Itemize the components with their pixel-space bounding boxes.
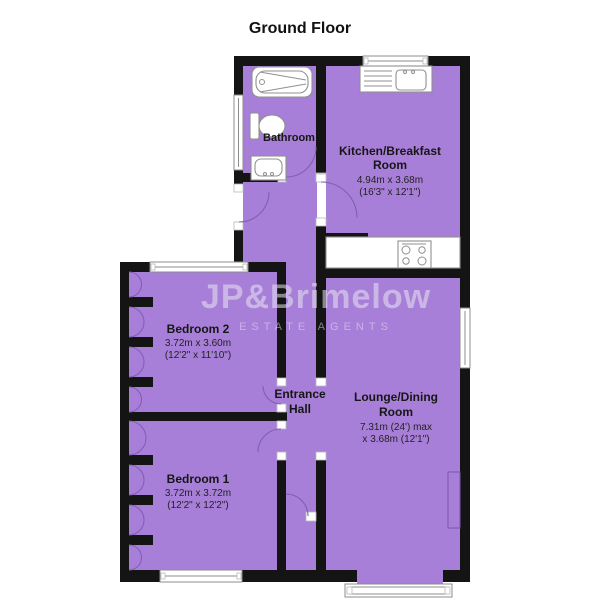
page-title: Ground Floor <box>249 20 351 37</box>
entrance-hall-label: Entrance <box>274 387 326 401</box>
floor-plan-page: JP&Brimelow ESTATE AGENTS Ground Floor B… <box>0 0 600 600</box>
bedroom1-dims-imperial: (12'2" x 12'2") <box>167 500 229 511</box>
bedroom1-dims-metric: 3.72m x 3.72m <box>165 488 231 499</box>
bathroom-label: Bathroom <box>263 132 315 144</box>
hob-icon <box>398 241 431 268</box>
kitchen-label: Kitchen/Breakfast <box>339 144 441 158</box>
svg-text:Room: Room <box>379 405 413 419</box>
bedroom2-label: Bedroom 2 <box>167 322 230 336</box>
kitchen-dims-metric: 4.94m x 3.68m <box>357 175 423 186</box>
lounge-bay-window <box>345 584 452 597</box>
watermark-name: JP&Brimelow <box>201 278 431 316</box>
svg-text:Hall: Hall <box>289 402 311 416</box>
bedroom2-dims-metric: 3.72m x 3.60m <box>165 338 231 349</box>
kitchen-sink-icon <box>360 66 432 92</box>
chimney-breast <box>448 472 460 528</box>
bay-floor <box>357 560 443 584</box>
kitchen-counter <box>326 237 460 268</box>
lounge-dims-line1: 7.31m (24') max <box>360 422 432 433</box>
bedroom-block-floor <box>129 271 286 572</box>
floor-plan: JP&Brimelow ESTATE AGENTS Ground Floor B… <box>0 0 600 600</box>
watermark-tagline: ESTATE AGENTS <box>239 321 393 333</box>
washbasin-icon <box>251 156 286 180</box>
svg-text:Room: Room <box>373 158 407 172</box>
lounge-dims-line2: x 3.68m (12'1") <box>362 434 429 445</box>
bathtub-icon <box>252 67 312 97</box>
lounge-label: Lounge/Dining <box>354 390 438 404</box>
bedroom2-dims-imperial: (12'2" x 11'10") <box>165 350 231 361</box>
kitchen-dims-imperial: (16'3" x 12'1") <box>359 187 421 198</box>
bedroom1-label: Bedroom 1 <box>167 472 230 486</box>
